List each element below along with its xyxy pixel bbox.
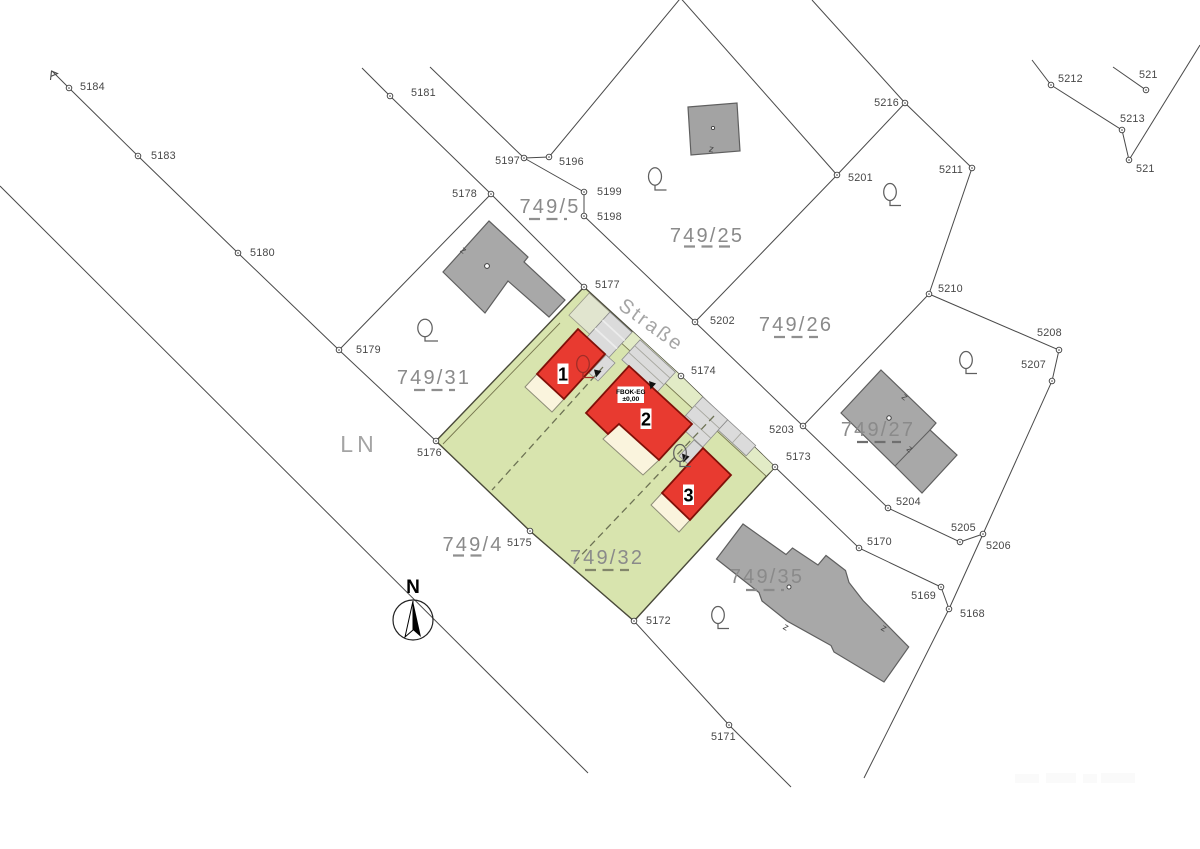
svg-text:5216: 5216 <box>874 97 899 109</box>
svg-text:521: 521 <box>1136 163 1155 175</box>
svg-text:749/4: 749/4 <box>442 534 503 556</box>
svg-text:749/5: 749/5 <box>519 196 580 218</box>
svg-text:5201: 5201 <box>848 172 873 184</box>
svg-text:5203: 5203 <box>769 424 794 436</box>
svg-text:5212: 5212 <box>1058 73 1083 85</box>
svg-text:5179: 5179 <box>356 344 381 356</box>
svg-text:2: 2 <box>641 410 651 430</box>
svg-text:749/35: 749/35 <box>730 566 804 588</box>
svg-text:5178: 5178 <box>452 188 477 200</box>
svg-text:5213: 5213 <box>1120 113 1145 125</box>
svg-text:5183: 5183 <box>151 150 176 162</box>
svg-text:5211: 5211 <box>939 164 963 176</box>
svg-text:5176: 5176 <box>417 447 442 459</box>
svg-text:FBOK-EG: FBOK-EG <box>616 389 645 396</box>
svg-text:5207: 5207 <box>1021 359 1046 371</box>
svg-text:5170: 5170 <box>867 536 892 548</box>
svg-text:5197: 5197 <box>495 155 520 167</box>
svg-text:5204: 5204 <box>896 496 921 508</box>
svg-text:5172: 5172 <box>646 615 671 627</box>
svg-text:5199: 5199 <box>597 186 622 198</box>
svg-text:5210: 5210 <box>938 283 963 295</box>
svg-text:5168: 5168 <box>960 608 985 620</box>
svg-text:749/31: 749/31 <box>397 367 471 389</box>
svg-text:5184: 5184 <box>80 81 105 93</box>
svg-text:5196: 5196 <box>559 156 584 168</box>
svg-text:749/32: 749/32 <box>570 547 644 569</box>
svg-text:5205: 5205 <box>951 522 976 534</box>
svg-text:5208: 5208 <box>1037 327 1062 339</box>
svg-text:5174: 5174 <box>691 365 716 377</box>
svg-text:5198: 5198 <box>597 211 622 223</box>
svg-text:LN: LN <box>340 431 377 457</box>
svg-text:521: 521 <box>1139 69 1158 81</box>
svg-text:3: 3 <box>683 486 693 506</box>
svg-text:5169: 5169 <box>911 590 936 602</box>
svg-text:±0,00: ±0,00 <box>622 396 639 403</box>
svg-text:749/26: 749/26 <box>759 314 833 336</box>
svg-text:5177: 5177 <box>595 279 620 291</box>
svg-text:5175: 5175 <box>507 537 532 549</box>
svg-text:N: N <box>406 577 420 598</box>
svg-text:5202: 5202 <box>710 315 735 327</box>
svg-text:5181: 5181 <box>411 87 436 99</box>
svg-text:749/27: 749/27 <box>841 419 915 441</box>
svg-text:5173: 5173 <box>786 451 811 463</box>
svg-text:5206: 5206 <box>986 540 1011 552</box>
svg-text:1: 1 <box>558 365 568 385</box>
svg-text:5180: 5180 <box>250 247 275 259</box>
svg-text:5171: 5171 <box>711 731 736 743</box>
svg-text:749/25: 749/25 <box>670 225 744 247</box>
